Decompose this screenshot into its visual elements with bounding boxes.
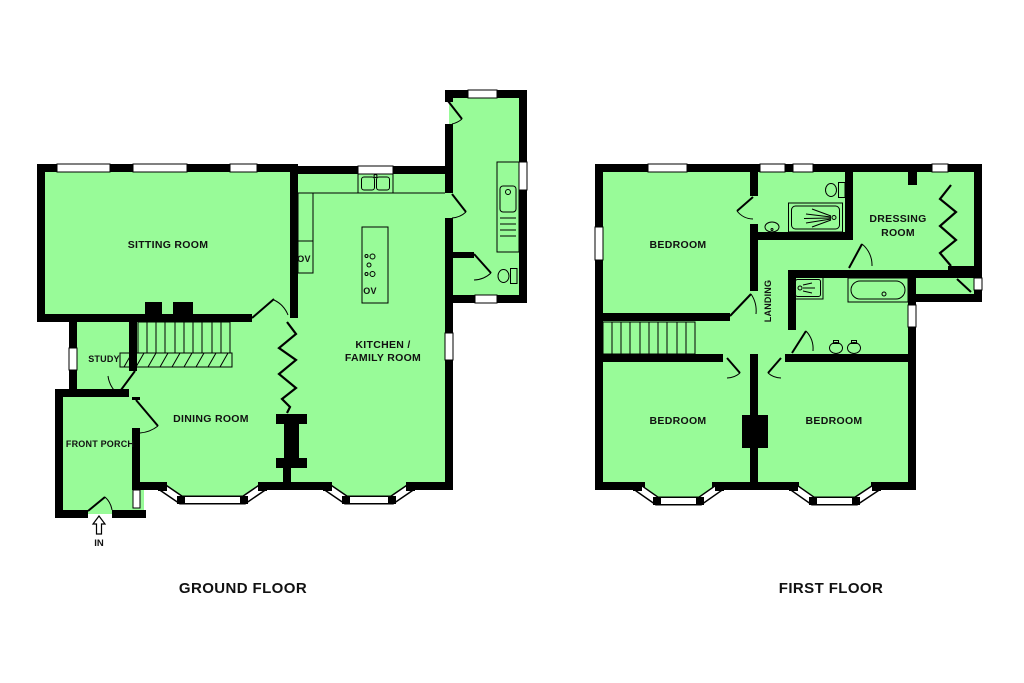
window — [358, 166, 393, 174]
floorplan-drawing: SITTING ROOM STUDY FRONT PORCH DINING RO… — [0, 0, 1024, 683]
entrance-arrow-icon — [93, 516, 105, 534]
label-sitting-room: SITTING ROOM — [128, 239, 209, 251]
window — [519, 162, 527, 190]
label-landing: LANDING — [763, 280, 773, 322]
fireplace-block — [145, 302, 162, 314]
first-floor-plan: BEDROOM BEDROOM BEDROOM DRESSING ROOM LA… — [595, 164, 982, 597]
window — [974, 278, 982, 290]
label-bedroom-bottom-left: BEDROOM — [650, 415, 707, 427]
label-oven-wall: OV — [297, 254, 310, 264]
window — [230, 164, 257, 172]
label-kitchen-2: FAMILY ROOM — [345, 352, 421, 364]
fireplace-block — [173, 302, 193, 314]
window — [932, 164, 948, 172]
label-dressing-2: ROOM — [881, 227, 915, 239]
window — [648, 164, 687, 172]
label-dining-room: DINING ROOM — [173, 413, 249, 425]
window — [760, 164, 785, 172]
chimney-breast — [276, 414, 307, 424]
window — [57, 164, 110, 172]
label-oven-island: OV — [363, 286, 376, 296]
window — [475, 295, 497, 303]
label-bedroom-bottom-right: BEDROOM — [806, 415, 863, 427]
window — [908, 305, 916, 327]
label-dressing-1: DRESSING — [869, 213, 926, 225]
floorplan-page: SITTING ROOM STUDY FRONT PORCH DINING RO… — [0, 0, 1024, 683]
window — [793, 164, 813, 172]
chimney-breast — [742, 415, 768, 448]
first-floor-title: FIRST FLOOR — [779, 580, 883, 597]
label-bedroom-top: BEDROOM — [650, 239, 707, 251]
window — [133, 490, 140, 508]
window — [595, 227, 603, 260]
label-kitchen-1: KITCHEN / — [355, 339, 410, 351]
window — [445, 333, 453, 360]
label-front-porch: FRONT PORCH — [66, 439, 134, 449]
window — [69, 348, 77, 370]
window — [468, 90, 497, 98]
label-entrance-in: IN — [94, 538, 104, 549]
window — [133, 164, 187, 172]
ground-floor-plan: SITTING ROOM STUDY FRONT PORCH DINING RO… — [37, 90, 527, 597]
ground-floor-title: GROUND FLOOR — [179, 580, 307, 597]
label-study: STUDY — [88, 354, 120, 364]
